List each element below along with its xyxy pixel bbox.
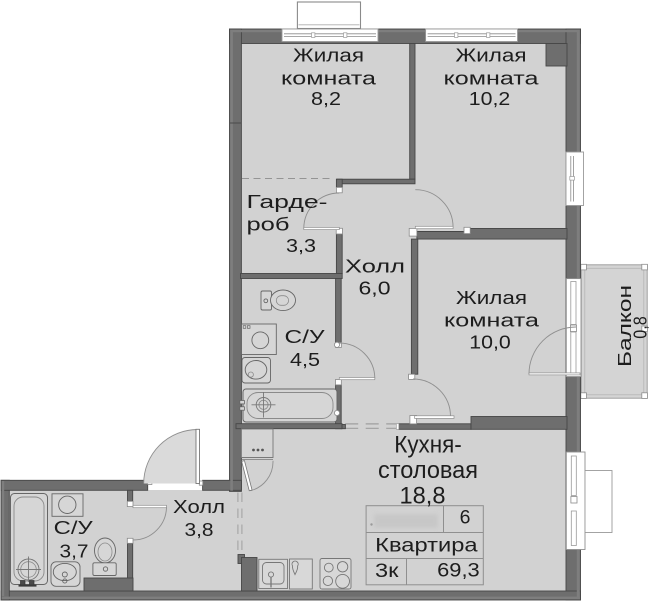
svg-text:комната: комната [444,68,540,89]
svg-text:3к: 3к [375,560,399,582]
svg-text:комната: комната [281,68,377,89]
svg-text:С/У: С/У [285,326,325,347]
svg-text:Холл: Холл [345,256,405,277]
svg-text:18,8: 18,8 [400,483,446,510]
svg-text:6,0: 6,0 [359,278,391,299]
svg-text:69,3: 69,3 [437,560,480,582]
svg-text:10,2: 10,2 [469,88,511,109]
svg-text:6: 6 [460,506,471,528]
svg-text:Холл: Холл [173,496,225,517]
svg-text:3,8: 3,8 [185,519,214,540]
svg-text:столовая: столовая [378,457,478,484]
svg-text:Кухня-: Кухня- [394,432,462,459]
svg-text:8,2: 8,2 [311,88,341,109]
svg-text:роб: роб [247,214,290,235]
svg-text:Жилая: Жилая [456,45,527,66]
svg-text:0,8: 0,8 [630,316,651,339]
svg-text:4,5: 4,5 [290,349,320,370]
svg-text:Жилая: Жилая [456,287,527,308]
svg-text:Жилая: Жилая [293,45,364,66]
svg-text:3,7: 3,7 [60,541,89,562]
svg-text:3,3: 3,3 [286,235,316,256]
svg-text:10,0: 10,0 [469,332,511,353]
svg-text:комната: комната [444,310,540,331]
svg-text:Гарде-: Гарде- [247,191,328,212]
svg-text:Квартира: Квартира [375,535,478,557]
svg-text:С/У: С/У [54,517,93,538]
